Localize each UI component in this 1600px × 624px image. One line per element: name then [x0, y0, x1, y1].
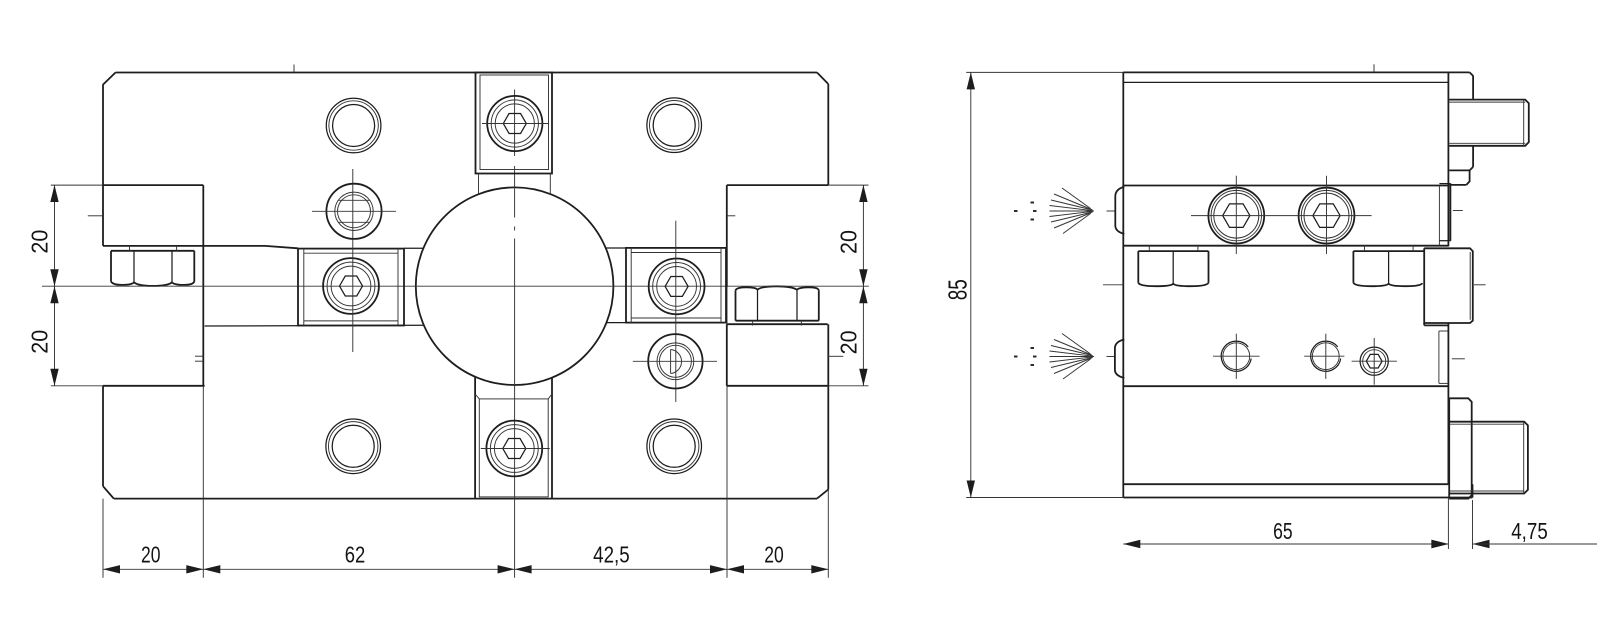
svg-text:62: 62 [345, 541, 366, 567]
svg-text:85: 85 [945, 279, 973, 300]
svg-text:20: 20 [27, 230, 53, 254]
svg-text:20: 20 [836, 230, 862, 254]
svg-text:20: 20 [764, 541, 784, 567]
svg-text:65: 65 [1273, 518, 1293, 544]
svg-text:20: 20 [141, 541, 161, 567]
svg-text:4,75: 4,75 [1511, 518, 1548, 544]
svg-text:20: 20 [27, 330, 53, 354]
svg-text:20: 20 [836, 330, 862, 354]
svg-text:42,5: 42,5 [593, 541, 630, 567]
